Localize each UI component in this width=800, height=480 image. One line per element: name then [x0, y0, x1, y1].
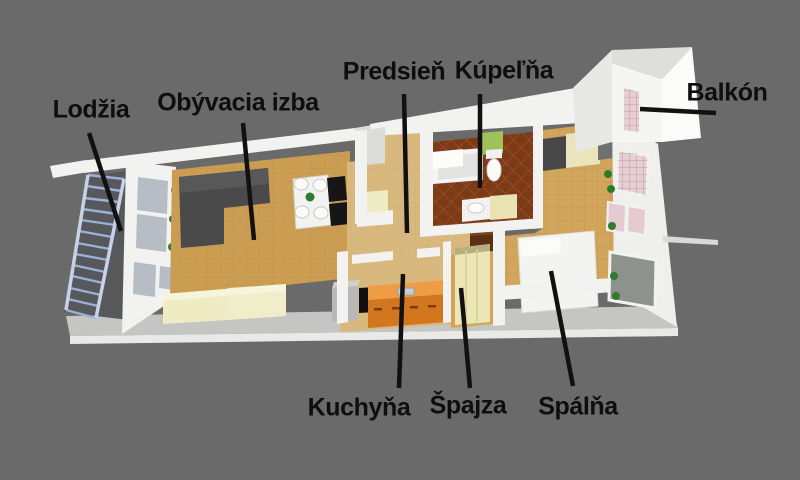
plant-icon [612, 292, 620, 300]
label-spajza: Špajza [430, 392, 507, 421]
label-obyvacia-izba: Obývacia izba [157, 89, 319, 118]
toilet-tank [486, 149, 502, 159]
table-plant-icon [306, 193, 315, 202]
pantry [451, 244, 493, 328]
window-glass [136, 214, 167, 252]
label-predsien: Predsieň [343, 58, 445, 87]
window-glass [133, 262, 156, 297]
plant-icon [608, 222, 616, 230]
living-room [163, 151, 350, 324]
label-kuchyna: Kuchyňa [308, 394, 411, 423]
label-spalna: Spálňa [538, 393, 618, 422]
living-hall-lower-wall [337, 251, 348, 324]
tower-left-face [573, 50, 612, 152]
right-ledge [663, 236, 718, 245]
bathtub-sheet [433, 149, 463, 169]
plant-icon [607, 185, 615, 193]
pantry-shelves-cream [455, 244, 490, 325]
plant-icon [604, 170, 612, 178]
label-kupelna: Kúpeľňa [455, 57, 554, 86]
bathroom-left-wall [420, 123, 433, 237]
kitchen-pantry-wall [443, 241, 451, 323]
window-glass [137, 177, 168, 214]
loggia [50, 160, 179, 334]
dining-chair-black [329, 202, 349, 226]
bath-cabinet-cream [490, 194, 517, 220]
label-lodzia: Lodžia [53, 96, 130, 125]
floor-plan-image: Lodžia Obývacia izba Predsieň Kúpeľňa Ba… [0, 0, 800, 480]
leader-predsien [404, 94, 407, 233]
bedroom-left-wall [493, 221, 505, 326]
balcony-tower [573, 47, 701, 152]
partition-living-hall [355, 130, 367, 224]
washbasin-bowl [468, 203, 484, 213]
toilet-bowl [487, 159, 501, 181]
kitchen [332, 257, 458, 332]
plant-icon [610, 272, 618, 280]
bathroom-right-wall [533, 120, 543, 229]
dining-chair-black [327, 176, 347, 202]
window-pink [627, 206, 646, 235]
entry-left-wall [367, 127, 385, 165]
label-balkon: Balkón [687, 79, 768, 108]
